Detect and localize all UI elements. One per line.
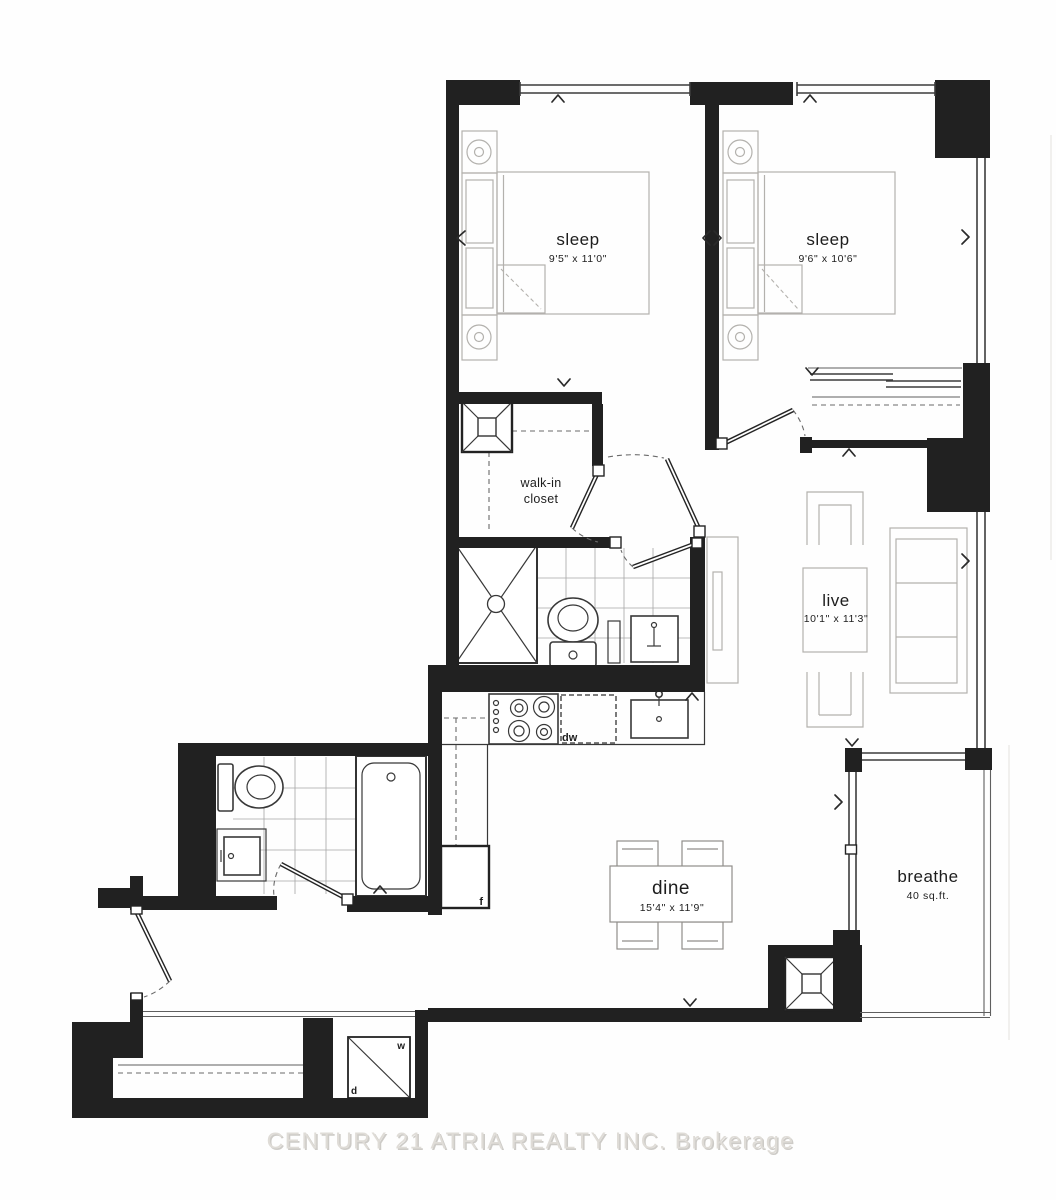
dryer-label: d <box>351 1086 357 1097</box>
sink-2 <box>217 829 266 881</box>
living-room-window <box>977 512 985 748</box>
washer-dryer: w d <box>348 1037 410 1098</box>
bedroom-1-dimensions: 9'5" x 11'0" <box>549 253 607 265</box>
entry-closets: w d <box>118 1037 410 1098</box>
toilet-2 <box>218 764 283 811</box>
living-balcony-window <box>862 753 965 760</box>
direction-marker <box>552 95 564 102</box>
bathtub-2 <box>356 756 426 896</box>
coffee-table <box>803 568 867 652</box>
accent-chair-1 <box>807 492 863 545</box>
direction-marker <box>962 554 969 568</box>
bathroom-2 <box>217 756 426 896</box>
vanity-sink-1 <box>608 616 678 663</box>
dining-chair <box>682 841 723 868</box>
direction-marker <box>843 449 855 456</box>
dining-room-dimensions: 15'4" x 11'9" <box>640 902 705 914</box>
dining-chair <box>682 922 723 949</box>
fridge: f <box>441 846 489 908</box>
floor-plan-drawing: dw f <box>0 0 1056 1200</box>
dishwasher-label: dw <box>562 732 578 744</box>
walk-in-closet-label-line1: walk-in <box>520 476 562 490</box>
direction-marker <box>686 693 698 700</box>
bathroom-1 <box>456 545 690 667</box>
shower-1 <box>456 545 537 663</box>
toilet-1 <box>548 598 598 667</box>
balcony-area: 40 sq.ft. <box>907 890 950 902</box>
direction-marker <box>804 95 816 102</box>
bedroom-2-label: sleep <box>806 230 849 249</box>
fridge-label: f <box>479 896 483 908</box>
dishwasher: dw <box>561 695 616 744</box>
bedroom-2-closet <box>808 368 962 405</box>
brokerage-watermark: CENTURY 21 ATRIA REALTY INC. Brokerage C… <box>267 1128 796 1156</box>
living-room-label: live <box>822 591 850 610</box>
watermark-text: CENTURY 21 ATRIA REALTY INC. Brokerage <box>267 1128 795 1154</box>
bathroom-2-door <box>274 864 353 905</box>
direction-marker <box>684 999 696 1006</box>
floor-plan-page: dw f <box>0 0 1056 1200</box>
dining-chair <box>617 922 658 949</box>
accent-chair-2 <box>807 672 863 727</box>
direction-marker <box>558 379 570 386</box>
bedroom-1-window <box>520 82 690 96</box>
windows <box>143 82 991 1018</box>
walk-in-closet-door <box>572 465 604 542</box>
bedroom-2-window <box>797 82 935 96</box>
living-room-dimensions: 10'1" x 11'3" <box>804 613 869 625</box>
direction-marker <box>846 739 858 746</box>
direction-marker <box>835 795 842 809</box>
dining-chair <box>617 841 658 868</box>
dining-room-label: dine <box>652 878 690 899</box>
direction-marker <box>962 230 969 244</box>
bedroom-1-label: sleep <box>556 230 599 249</box>
walk-in-closet-label-line2: closet <box>524 492 559 506</box>
scan-artifact-lines <box>1009 135 1051 1040</box>
stove <box>489 694 558 744</box>
balcony-sliding-door <box>846 772 857 930</box>
bedroom-2-dimensions: 9'6" x 10'6" <box>799 253 858 265</box>
kitchen-sink <box>631 691 688 738</box>
shaft-symbol-1 <box>462 402 512 452</box>
sofa <box>890 528 967 693</box>
washer-label: w <box>396 1041 405 1052</box>
balcony-label: breathe <box>897 867 958 886</box>
entry-closet-front <box>143 1012 415 1017</box>
bedroom-2-side-window <box>977 158 985 363</box>
walk-in-closet-fixtures <box>462 402 592 533</box>
entry-door <box>131 906 170 1000</box>
bedroom-2-door <box>716 410 805 449</box>
bedroom-1-door <box>608 455 705 537</box>
